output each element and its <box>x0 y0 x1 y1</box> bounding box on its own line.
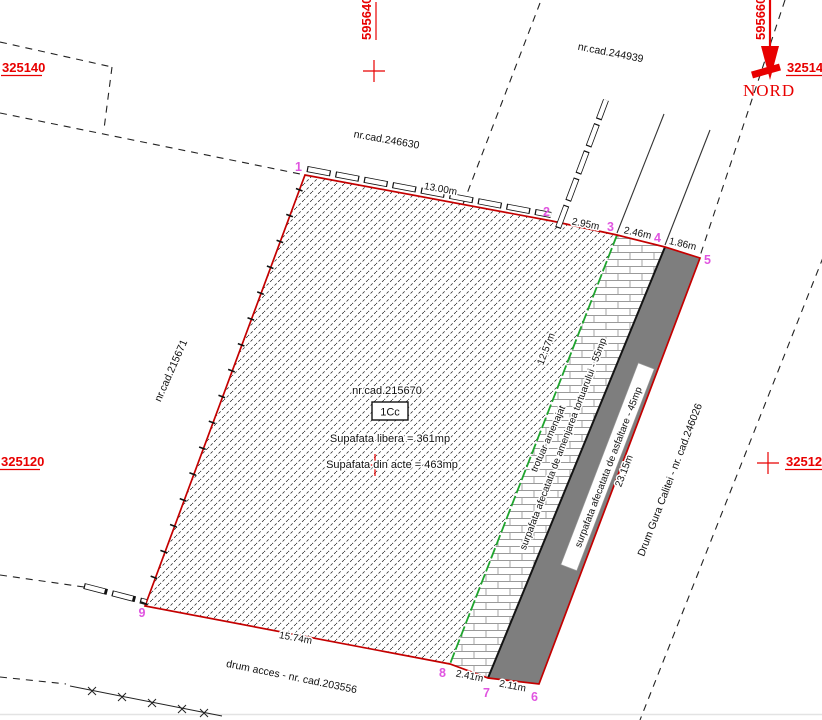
free-area-label: Supafata libera = 361mp <box>330 433 450 445</box>
point-label: 6 <box>531 690 538 704</box>
point-label: 4 <box>654 231 661 245</box>
parcel-number-label: nr.cad.215670 <box>352 385 422 397</box>
grid-label-v: 595640 <box>359 0 374 40</box>
grid-label-y: 325120 <box>786 454 822 469</box>
parcel-code-label: 1Cc <box>380 407 400 419</box>
deed-area-label: Supafata din acte = 463mp <box>326 459 458 471</box>
plan-canvas: 325140 325140 325120 325120 595640 59566… <box>0 0 822 720</box>
grid-label-v: 595660 <box>753 0 768 40</box>
point-label: 7 <box>483 686 490 700</box>
point-label: 5 <box>704 253 711 267</box>
point-label: 8 <box>439 666 446 680</box>
point-label: 2 <box>543 205 550 219</box>
grid-label-x: 325140 <box>787 60 822 75</box>
cadastral-plan: 325140 325140 325120 325120 595640 59566… <box>0 0 822 720</box>
north-label: NORD <box>743 81 795 100</box>
point-label: 9 <box>139 606 146 620</box>
point-label: 3 <box>607 220 614 234</box>
point-label: 1 <box>295 160 302 174</box>
grid-label-x: 325140 <box>2 60 45 75</box>
grid-label-y: 325120 <box>1 454 44 469</box>
